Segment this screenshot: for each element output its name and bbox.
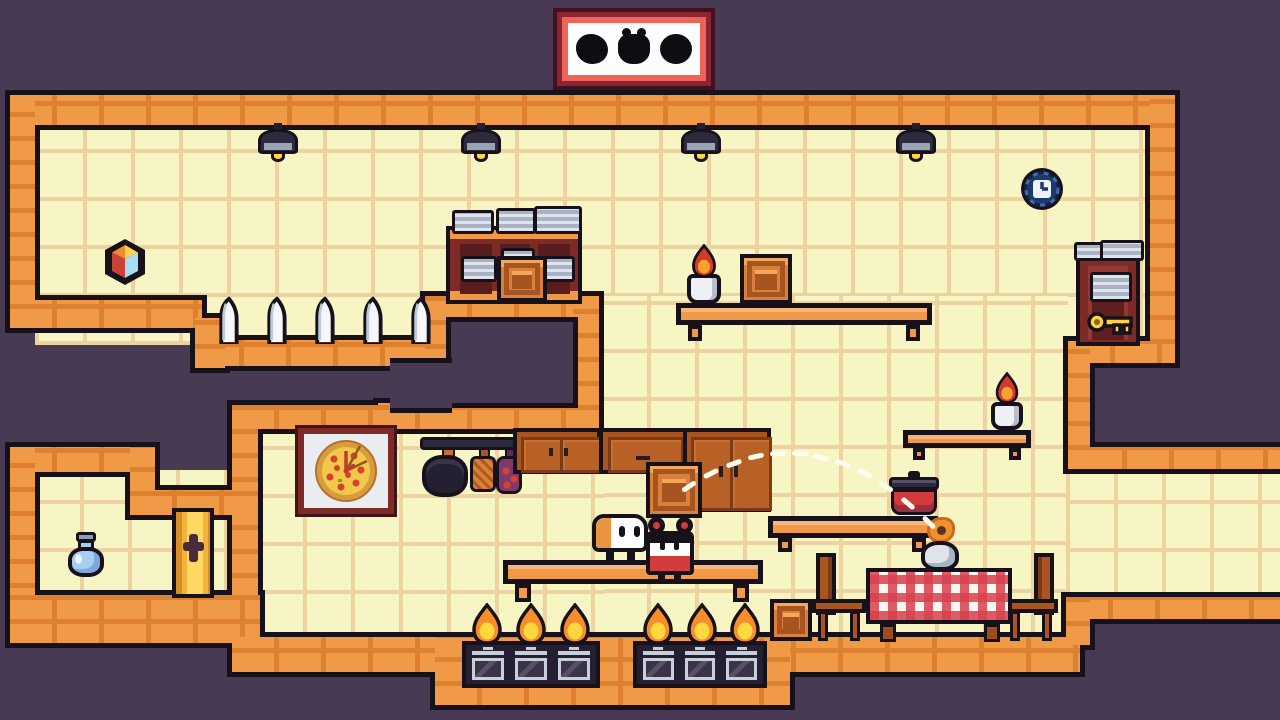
- oven-door: [472, 658, 504, 680]
- burner-flame-icon: [728, 603, 762, 645]
- lamp-bulb-icon: [909, 151, 923, 162]
- wall-window-opening: [390, 358, 452, 413]
- shelf-crate[interactable]: [740, 254, 792, 304]
- floor-door-room: [10, 595, 260, 643]
- shelf-leg: [778, 538, 792, 552]
- shelf-leg: [1009, 448, 1021, 460]
- ceiling-lower-right: [1080, 447, 1280, 469]
- ceiling-lamp: [255, 123, 301, 167]
- oven: [641, 647, 676, 682]
- utensil-rack: [420, 437, 524, 501]
- oven: [470, 647, 506, 682]
- toast-leg: [627, 551, 635, 562]
- ceiling-lamp: [893, 123, 939, 167]
- oven-door: [685, 658, 716, 680]
- pot-body: [891, 489, 937, 515]
- carried-crate[interactable]: [646, 462, 702, 518]
- hud-collectible-tracker: [557, 12, 711, 86]
- hanging-pot-icon: [422, 455, 468, 497]
- lamp-bulb-icon: [474, 151, 488, 162]
- milk-bottle[interactable]: [68, 532, 104, 578]
- chef-hand-dot: [681, 522, 688, 529]
- chair: [812, 553, 866, 641]
- shelf-leg: [515, 584, 531, 602]
- burner-flame-icon: [641, 603, 675, 645]
- toast-eye: [634, 526, 640, 537]
- character-shelf: [503, 560, 763, 584]
- vase-body: [921, 541, 959, 571]
- table-cloth: [866, 568, 1012, 624]
- pepper-flame-icon: [994, 372, 1020, 404]
- ledge-step: [1066, 597, 1090, 645]
- cabinet-handle: [636, 456, 650, 460]
- chair-leg: [1042, 611, 1052, 641]
- collectible-silhouette-jar: [618, 34, 650, 64]
- oven-block: [633, 641, 767, 688]
- oven: [513, 647, 549, 682]
- oven: [724, 647, 759, 682]
- knife-block-row: [214, 296, 434, 342]
- knife-icon: [358, 296, 386, 342]
- exit-door[interactable]: [172, 508, 214, 598]
- game-stage: [0, 0, 1280, 720]
- flower-vase[interactable]: [919, 517, 961, 573]
- pepper-flame-icon: [690, 244, 718, 278]
- knife-icon: [262, 296, 290, 342]
- shelf-leg: [913, 448, 925, 460]
- toast-leg: [606, 551, 614, 562]
- wall-left-lower: [10, 447, 35, 607]
- chef-eye: [660, 541, 665, 550]
- wall-top: [10, 95, 1175, 125]
- floor-crate[interactable]: [770, 599, 812, 641]
- toast-eye: [619, 526, 625, 537]
- ceiling-lamp: [458, 123, 504, 167]
- pizza-clock: [304, 434, 388, 508]
- plate-stack-top: [534, 206, 582, 234]
- cabinet-handle: [734, 466, 738, 477]
- ceiling-lamp: [678, 123, 724, 167]
- cabinet-handle: [564, 448, 568, 456]
- floor-right-ledge: [1066, 597, 1280, 619]
- character-tomato-chef[interactable]: [646, 515, 698, 585]
- lamp-band: [264, 143, 292, 150]
- chef-eye: [674, 541, 679, 550]
- floor-upper-left: [10, 300, 202, 328]
- hanging-masher-icon: [470, 456, 496, 492]
- pizza-clock-frame: [298, 428, 394, 514]
- cooking-pot[interactable]: [889, 471, 939, 517]
- burner-flame-icon: [514, 603, 548, 645]
- bottle-shine: [75, 554, 82, 564]
- wall-left-upper: [10, 95, 35, 328]
- wall-shelf-right: [903, 430, 1031, 448]
- plate-stack-top: [1100, 240, 1144, 261]
- cabinet-double: [513, 428, 601, 474]
- door-keyhole-cross: [183, 542, 204, 551]
- burner-flame-icon: [685, 603, 719, 645]
- lamp-band: [687, 143, 715, 150]
- plate-stack: [461, 256, 497, 282]
- shelf-leg: [906, 325, 920, 341]
- burner-flame-icon: [558, 603, 592, 645]
- table-leg: [984, 624, 1000, 642]
- burner-flame-icon: [470, 603, 504, 645]
- oven-door: [643, 658, 674, 680]
- chef-hand-dot: [653, 522, 660, 529]
- oven-block: [462, 641, 600, 688]
- chair: [1004, 553, 1058, 641]
- cabinet-crate[interactable]: [497, 256, 547, 302]
- bottle-body: [68, 547, 104, 577]
- lamp-bulb-icon: [271, 151, 285, 162]
- pepper-jar[interactable]: [687, 274, 721, 304]
- knife-icon: [406, 296, 434, 342]
- knife-icon: [310, 296, 338, 342]
- flower-center: [937, 526, 946, 535]
- chair-leg: [818, 611, 828, 641]
- cabinet-handle: [549, 448, 553, 456]
- plate-stack: [1090, 272, 1132, 302]
- pot-shelf: [768, 516, 938, 538]
- wall-window-hole: [446, 317, 578, 408]
- room-lower-right: [1066, 465, 1280, 600]
- chef-body: [646, 531, 694, 575]
- chef-leg: [674, 574, 681, 584]
- golden-key[interactable]: [1086, 306, 1134, 338]
- cabinet-door: [521, 437, 563, 473]
- oven-door: [515, 658, 547, 680]
- shelf-leg: [733, 584, 749, 602]
- plate-stack-top: [452, 210, 494, 234]
- plate-stack-top: [496, 208, 536, 234]
- collectible-clock[interactable]: [1019, 166, 1065, 212]
- wall-right-upper: [1150, 95, 1175, 363]
- oven-door: [558, 658, 590, 680]
- cabinet-handle: [719, 466, 723, 477]
- oven-door: [726, 658, 757, 680]
- lamp-bulb-icon: [694, 151, 708, 162]
- pepper-jar[interactable]: [991, 402, 1023, 430]
- lamp-band: [902, 143, 930, 150]
- collectible-silhouette-round: [576, 34, 608, 64]
- collectible-cube[interactable]: [102, 238, 148, 286]
- shelf-leg: [688, 325, 702, 341]
- oven: [556, 647, 592, 682]
- chair-leg: [850, 611, 860, 641]
- toast-crust: [596, 518, 611, 548]
- character-toast[interactable]: [592, 514, 648, 562]
- oven: [683, 647, 718, 682]
- wall-shelf-upper: [676, 303, 932, 325]
- collectible-silhouette-circle: [660, 34, 692, 64]
- knife-icon: [214, 296, 242, 342]
- lamp-band: [467, 143, 495, 150]
- chef-leg: [658, 574, 665, 584]
- table-leg: [880, 624, 896, 642]
